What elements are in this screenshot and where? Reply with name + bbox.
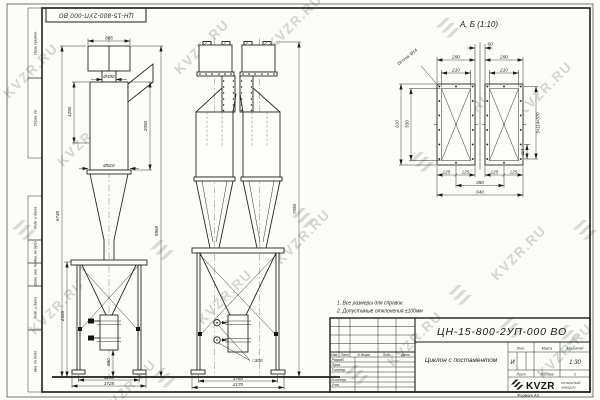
svg-text:Справ. №: Справ. № [34,110,38,126]
dim-front-neck-dia: Ø490 [102,74,115,79]
kvzr-logo: KVZR КОТЕЛЬНЫЙ ЗАВОД.РУ [511,380,580,393]
kvzr-logo-text: KVZR [526,381,555,392]
dim-detail-holes-width: 210 [451,67,460,72]
tb-doc-name: Циклон с постаментом [425,357,498,364]
side-view: □300 1760 2170 7050 [191,38,301,390]
tb-header-list: Лист [340,353,350,357]
note-1: 1. Все размеры для справок. [337,301,404,307]
dim-side-base-width: 2170 [232,382,244,387]
svg-text:KVZR.RU: KVZR.RU [272,206,333,267]
svg-text:Взам. инв. №: Взам. инв. № [34,263,38,285]
tb-header-podp: Подп. [383,353,392,357]
tb-header-data: Дата [400,353,410,357]
svg-text:Подп. и дата: Подп. и дата [34,207,38,230]
drawing-sheet: KVZR.RU KVZR.RU KVZR.RU KVZR.RU KVZR.RU … [0,0,600,400]
svg-text:290: 290 [499,54,508,59]
dim-front-pedestal-height: 2365 [60,310,65,322]
svg-text:KVZR.RU: KVZR.RU [514,58,575,119]
top-stamp: ЦН-15-800-2УП-000 ВО [46,8,146,22]
tb-listov-label: Листов [539,373,553,377]
dim-detail-pitch-single: 114 [520,148,525,155]
svg-text:Инв. № подл.: Инв. № подл. [34,350,38,372]
drawing-canvas: KVZR.RU KVZR.RU KVZR.RU KVZR.RU KVZR.RU … [0,0,600,400]
tb-header-izm: Изм. [331,353,338,357]
tb-row-utv: Утв. [332,383,340,387]
tb-list-label: Лист [515,373,525,377]
detail-holes-note: 28 отв. Ø14 [395,47,418,67]
tb-lit-label: Лит. [516,347,525,351]
dim-detail-q1: 125 [443,169,451,174]
top-stamp-number: ЦН-15-800-2УП-000 ВО [58,11,133,18]
tb-masshtab-label: Масштаб [567,347,585,351]
detail-view-title: А, Б (1:10) [459,20,498,29]
tb-row-prov: Пров. [332,363,341,367]
dim-front-base-width: 1725 [104,381,115,386]
svg-text:KVZR.RU: KVZR.RU [488,222,549,283]
svg-text:Подп. и дата: Подп. и дата [34,297,38,320]
dim-detail-panel-width: 290 [451,54,460,59]
frame-field-label: Перв. примен. [34,31,38,55]
front-port-a [88,319,94,324]
svg-text:125: 125 [462,169,470,174]
tb-listov-value: 1 [574,373,576,377]
tb-doc-number: ЦН-15-800-2УП-000 ВО [437,326,567,338]
kvzr-sub1: КОТЕЛЬНЫЙ [561,381,580,385]
dim-front-body-dia: Ø810 [102,163,115,168]
tb-row-razrab: Разраб. [332,358,345,362]
dim-front-total-height: 5865 [154,225,159,236]
dim-detail-centers: 350 [476,180,484,185]
tb-scale-value: 1:30 [569,360,581,366]
dim-side-overall-height: 7050 [292,203,297,214]
front-view: 885 Ø490 1290 2050 Ø810 [55,35,163,388]
svg-text:Инв. № дубл.: Инв. № дубл. [34,240,38,262]
svg-text:210: 210 [499,67,508,72]
dim-detail-pitch: 5×114=570 [536,112,541,134]
dim-front-base-span: 1200 [104,375,115,380]
svg-text:125: 125 [491,169,499,174]
dim-side-outlet-square: □300 [252,358,263,363]
dim-detail-panel-height: 610 [395,120,400,128]
dim-front-outlet-height: 550 [106,358,111,366]
kvzr-logo-icon [511,380,523,390]
svg-text:125: 125 [510,169,518,174]
dim-front-overall-height: 6745 [55,210,60,221]
format-label: Формат А3 [517,393,540,398]
tb-row-nkontr: Н.контр. [332,378,347,382]
dim-detail-holes-height: 530 [405,120,410,128]
dim-detail-gap: 60 [487,42,493,47]
detail-view: А, Б (1:10) 28 отв. Ø14 60 290 290 [395,20,541,197]
dim-detail-overall: 640 [476,189,484,194]
kvzr-sub2: ЗАВОД.РУ [561,386,576,390]
front-port-b [88,336,94,341]
tb-lit-value: И [510,360,515,366]
tb-row-tkontr: Т.контр. [332,368,347,372]
dim-front-body-height: 2050 [143,120,148,132]
tb-massa-label: Масса [542,347,553,351]
kvzr-watermark-text: KVZR.RU [0,40,61,101]
tb-header-ndoc: N докум. [358,353,371,357]
dim-front-top-width: 885 [105,35,113,40]
note-2: 2. Допустимые отклонения ±100мм [336,309,423,315]
dim-side-base-span: 1760 [233,376,244,381]
notes: 1. Все размеры для справок. 2. Допустимы… [336,301,423,315]
dim-front-inlet-height: 1290 [67,106,72,117]
